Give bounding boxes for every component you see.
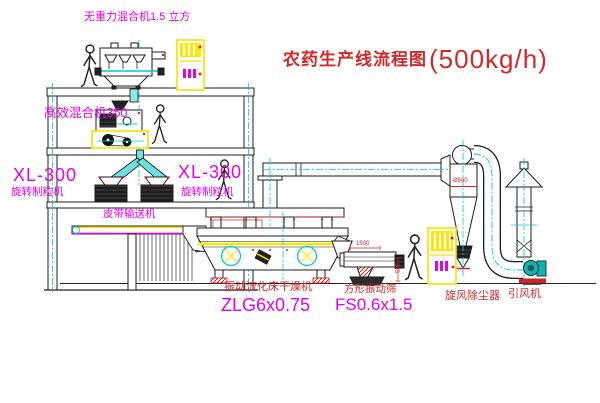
sieve-name-label: 方形振动筛 — [344, 284, 397, 295]
gas-duct — [474, 154, 523, 270]
cyclone-label: 旋风除尘器 — [445, 291, 500, 302]
control-cabinet-right — [428, 228, 456, 284]
mixer-mid-label: 高效混合机350 — [44, 107, 127, 120]
sieve-width-dim: 1500 — [356, 241, 369, 247]
person-1 — [82, 45, 97, 86]
mixer-top-label: 无重力混合机1.5 立方 — [84, 12, 190, 23]
belt-conveyor-label: 皮带输送机 — [103, 209, 156, 220]
cyclone-diameter-dim: Ø500 — [453, 178, 468, 184]
rotary-granulators — [95, 177, 173, 202]
process-flow-diagram: 无重力混合机1.5 立方 农药生产线流程图 (500kg/h) 高效混合机350… — [0, 0, 600, 403]
granulator-left-model-label: XL-300 — [13, 166, 77, 184]
sieve-height-dim: 345 — [393, 263, 399, 273]
granulator-left-name-label: 旋转制粒机 — [11, 187, 64, 198]
exhaust-duct — [258, 155, 450, 208]
feed-pipe — [130, 89, 138, 102]
person-2 — [152, 105, 166, 143]
sieve-model-label: FS0.6x1.5 — [335, 296, 413, 313]
granulator-right-name-label: 旋转制粒机 — [181, 187, 234, 198]
dryer-model-label: ZLG6x0.75 — [221, 296, 310, 314]
title-text: 农药生产线流程图 — [283, 51, 427, 68]
control-cabinet-top — [177, 40, 204, 90]
person-4 — [406, 235, 422, 279]
diagram-title: 农药生产线流程图 (500kg/h) — [283, 46, 548, 72]
title-capacity: (500kg/h) — [429, 46, 548, 72]
fluid-bed-dryer — [183, 208, 352, 283]
gravity-free-mixer — [95, 43, 165, 89]
fan-label: 引风机 — [508, 289, 541, 300]
induced-draft-fan — [519, 261, 546, 285]
dryer-name-label: 振动流化床干燥机 — [224, 282, 312, 293]
granulator-right-model-label: XL-300 — [178, 163, 242, 181]
